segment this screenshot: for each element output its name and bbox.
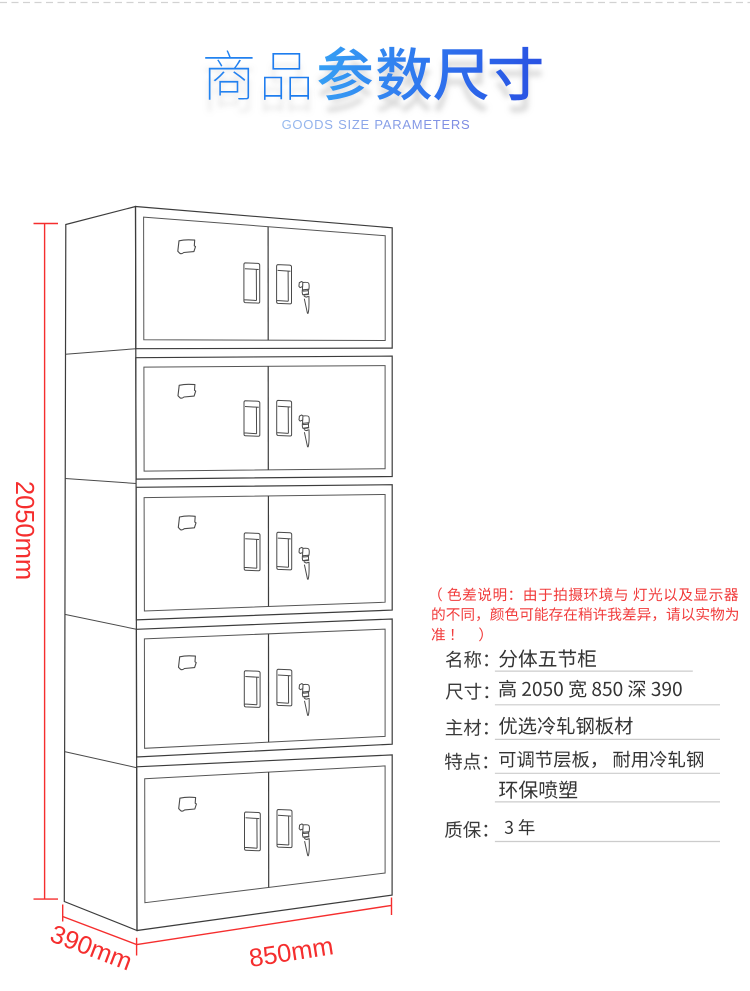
svg-text:GOODS SIZE PARAMETERS: GOODS SIZE PARAMETERS [282,117,471,132]
svg-text:2050mm: 2050mm [10,481,38,580]
